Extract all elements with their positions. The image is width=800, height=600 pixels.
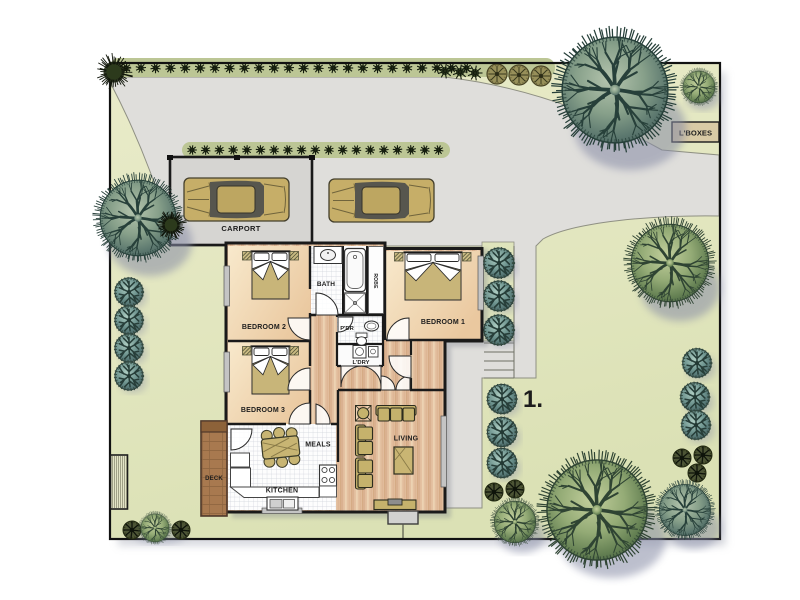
svg-text:BEDROOM 2: BEDROOM 2 [242, 324, 286, 331]
svg-text:1.: 1. [523, 386, 543, 413]
svg-text:P'DR: P'DR [340, 326, 354, 332]
svg-text:ROBE: ROBE [372, 273, 378, 289]
svg-text:BATH: BATH [317, 281, 335, 288]
svg-text:DECK: DECK [205, 476, 223, 482]
svg-text:CARPORT: CARPORT [221, 224, 260, 233]
svg-text:KITCHEN: KITCHEN [266, 488, 299, 495]
svg-text:BEDROOM 3: BEDROOM 3 [241, 407, 285, 414]
svg-text:LIVING: LIVING [394, 436, 419, 443]
svg-text:BEDROOM 1: BEDROOM 1 [421, 319, 465, 326]
svg-text:MEALS: MEALS [305, 442, 331, 449]
svg-text:L'DRY: L'DRY [353, 360, 370, 366]
